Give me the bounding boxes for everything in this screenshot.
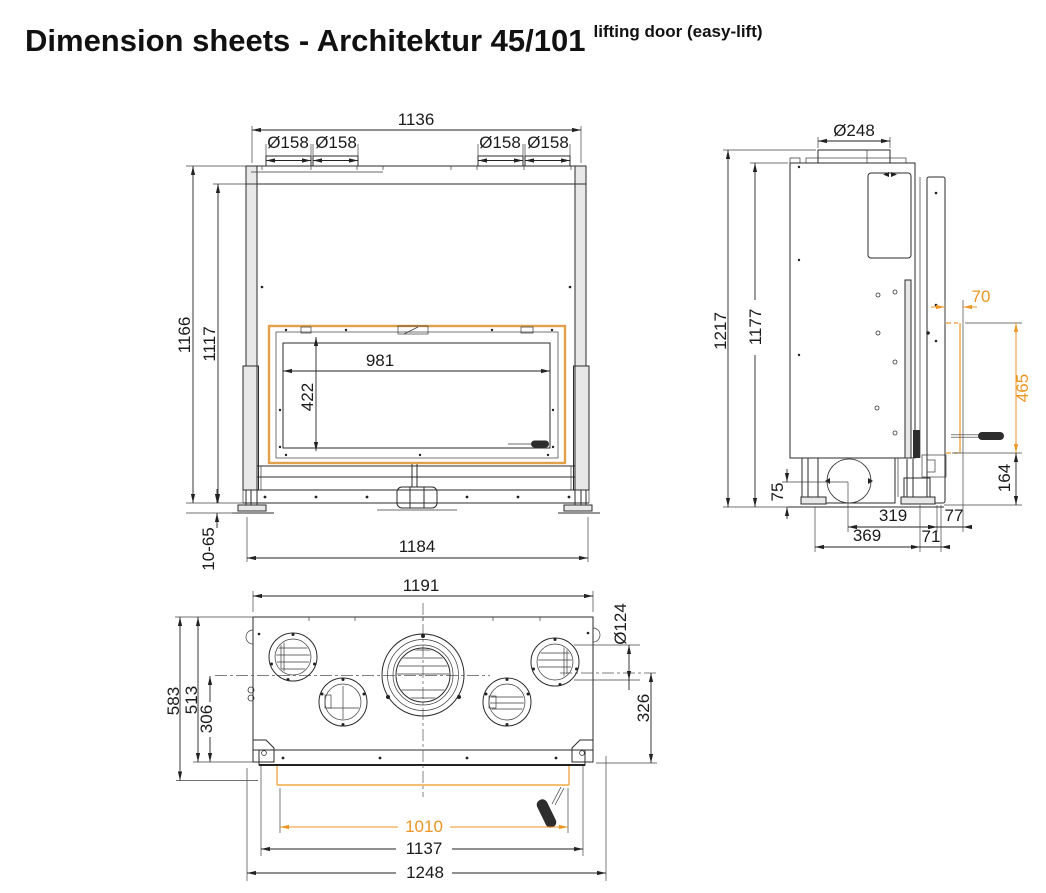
front-dimensions: 1136 Ø158 Ø158 Ø158 Ø158 bbox=[175, 110, 588, 571]
front-left-trim bbox=[246, 166, 257, 366]
dimension-sheet-page: Dimension sheets - Architektur 45/101lif… bbox=[0, 0, 1046, 893]
dim-plan-flue-to-front: 326 bbox=[634, 694, 653, 722]
plan-front-trim bbox=[259, 750, 585, 765]
dim-side-height-total: 1217 bbox=[711, 312, 730, 350]
dim-side-height-body: 1177 bbox=[746, 309, 765, 346]
plan-view: 1191 Ø124 326 583 513 bbox=[164, 576, 657, 882]
dim-front-height-total: 1166 bbox=[175, 317, 194, 354]
dim-front-leg-adjust: 10-65 bbox=[199, 527, 218, 570]
front-view: 1136 Ø158 Ø158 Ø158 Ø158 bbox=[175, 110, 600, 571]
dim-front-collar-1: Ø158 bbox=[267, 133, 309, 152]
door-screws bbox=[279, 329, 554, 456]
dim-side-glass-height: 465 bbox=[1013, 374, 1032, 402]
dim-plan-top-width: 1191 bbox=[403, 576, 440, 595]
front-base-screws bbox=[264, 496, 571, 499]
dim-plan-depth-flue-center: 306 bbox=[197, 705, 216, 733]
side-dimensions: Ø248 1217 1177 70 465 bbox=[711, 121, 1032, 552]
side-view: Ø248 1217 1177 70 465 bbox=[711, 121, 1032, 552]
dim-front-height-body: 1117 bbox=[200, 326, 219, 361]
dim-plan-outlet-diameter: Ø124 bbox=[611, 603, 630, 645]
front-collar-stubs bbox=[266, 156, 570, 166]
plan-body bbox=[215, 603, 657, 829]
dim-side-plinth-height: 75 bbox=[768, 483, 787, 502]
front-body bbox=[232, 156, 600, 513]
dim-plan-opening-width: 1010 bbox=[405, 817, 443, 836]
plan-outlet-d bbox=[531, 638, 579, 686]
door-glass bbox=[283, 343, 550, 448]
side-junction-box bbox=[868, 173, 911, 258]
dim-front-base-width: 1184 bbox=[399, 537, 436, 556]
side-base bbox=[802, 458, 895, 503]
plan-dimensions: 1191 Ø124 326 583 513 bbox=[164, 576, 657, 882]
dim-plan-depth-total: 583 bbox=[164, 687, 183, 715]
plan-outlet-c bbox=[483, 678, 531, 726]
door-handle-icon bbox=[531, 441, 549, 448]
dim-front-collar-2: Ø158 bbox=[315, 133, 357, 152]
dim-side-flue-diameter: Ø248 bbox=[833, 121, 875, 140]
dimension-drawing: 1136 Ø158 Ø158 Ø158 Ø158 bbox=[0, 0, 1046, 893]
flue-collar bbox=[818, 150, 890, 163]
side-body bbox=[788, 150, 1004, 507]
dim-plan-frame-width: 1137 bbox=[406, 839, 443, 858]
dim-side-frame-offset: 70 bbox=[972, 287, 991, 306]
door-inner-frame bbox=[276, 332, 558, 458]
dim-side-foot-to-front: 71 bbox=[922, 527, 941, 546]
side-handle-icon bbox=[951, 432, 1004, 440]
combustion-air-port bbox=[827, 459, 871, 503]
dim-side-air-to-front: 319 bbox=[879, 506, 907, 525]
dim-side-handle-height: 164 bbox=[995, 464, 1014, 492]
side-door-panel bbox=[905, 280, 911, 458]
front-right-trim-lower bbox=[574, 366, 590, 490]
side-feet bbox=[801, 455, 946, 504]
front-right-trim bbox=[575, 166, 586, 366]
front-left-trim-lower bbox=[243, 366, 259, 490]
dim-front-collar-4: Ø158 bbox=[527, 133, 569, 152]
plan-outlet-b bbox=[319, 678, 367, 726]
dim-plan-total-width: 1248 bbox=[406, 863, 444, 882]
dim-front-top-width: 1136 bbox=[398, 110, 435, 129]
front-top-ticks bbox=[262, 166, 571, 170]
dim-front-glass-width: 981 bbox=[366, 351, 394, 370]
plan-handle-icon bbox=[535, 787, 564, 829]
front-feet bbox=[232, 490, 600, 513]
dim-front-glass-height: 422 bbox=[298, 383, 317, 411]
plan-top-ticks bbox=[309, 617, 540, 621]
dim-front-collar-3: Ø158 bbox=[479, 133, 521, 152]
dim-side-feet-spacing: 369 bbox=[853, 526, 881, 545]
plan-outlet-a bbox=[269, 633, 317, 681]
dim-side-front-offset: 77 bbox=[945, 506, 964, 525]
